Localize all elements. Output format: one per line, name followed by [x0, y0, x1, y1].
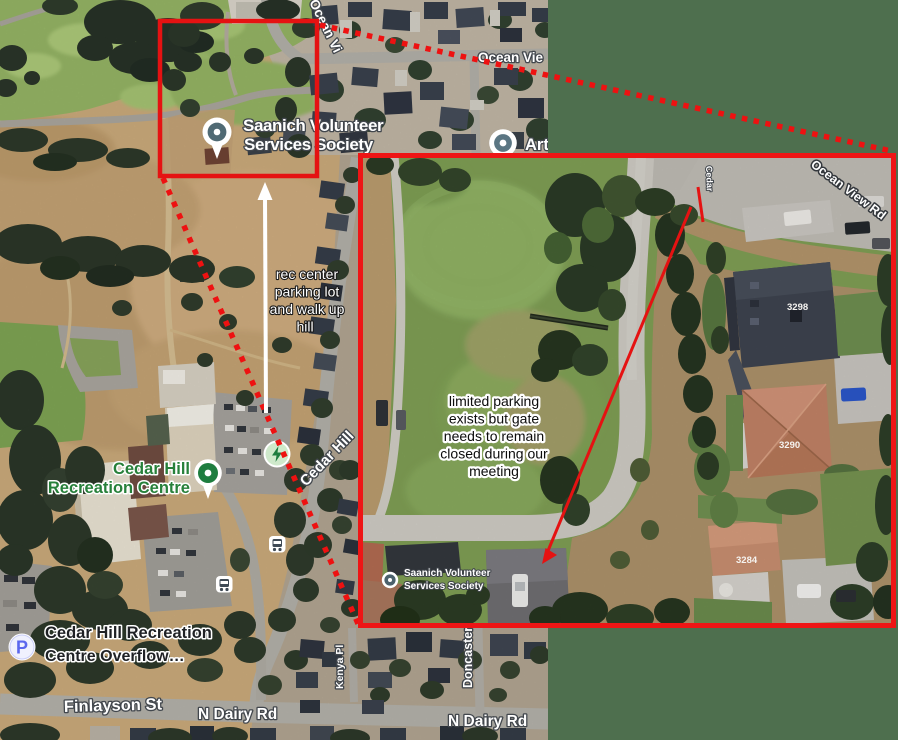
svg-text:Recreation Centre: Recreation Centre [48, 479, 190, 497]
svg-text:3290: 3290 [779, 440, 800, 451]
svg-text:exists but gate: exists but gate [449, 411, 539, 427]
svg-text:3284: 3284 [736, 555, 758, 566]
svg-text:hill: hill [296, 319, 313, 335]
svg-text:limited parking: limited parking [449, 393, 539, 409]
svg-text:N Dairy Rd: N Dairy Rd [198, 706, 277, 723]
svg-text:meeting: meeting [469, 463, 519, 479]
svg-text:Centre Overflow…: Centre Overflow… [45, 648, 185, 665]
svg-text:Saanich Volunteer: Saanich Volunteer [404, 568, 491, 579]
svg-text:rec center: rec center [276, 266, 339, 282]
svg-text:needs to remain: needs to remain [444, 428, 544, 444]
svg-text:Saanich Volunteer: Saanich Volunteer [243, 116, 384, 135]
svg-text:Kenya Pl: Kenya Pl [334, 645, 346, 689]
svg-text:closed during our: closed during our [440, 446, 548, 462]
svg-text:parking lot: parking lot [275, 284, 340, 300]
svg-text:Doncaster: Doncaster [461, 627, 475, 688]
svg-text:Cedar Hill Recreation: Cedar Hill Recreation [45, 624, 212, 642]
svg-text:Cedar: Cedar [704, 166, 715, 192]
svg-text:3298: 3298 [787, 302, 808, 313]
svg-text:Finlayson St: Finlayson St [64, 695, 163, 716]
svg-text:Cedar Hill: Cedar Hill [113, 460, 190, 478]
svg-text:Art: Art [525, 136, 549, 154]
svg-text:N Dairy Rd: N Dairy Rd [448, 713, 527, 730]
svg-text:Services Society: Services Society [244, 135, 374, 154]
svg-text:P: P [16, 638, 28, 658]
svg-text:Services Society: Services Society [404, 581, 484, 592]
svg-text:and walk up: and walk up [270, 301, 345, 317]
